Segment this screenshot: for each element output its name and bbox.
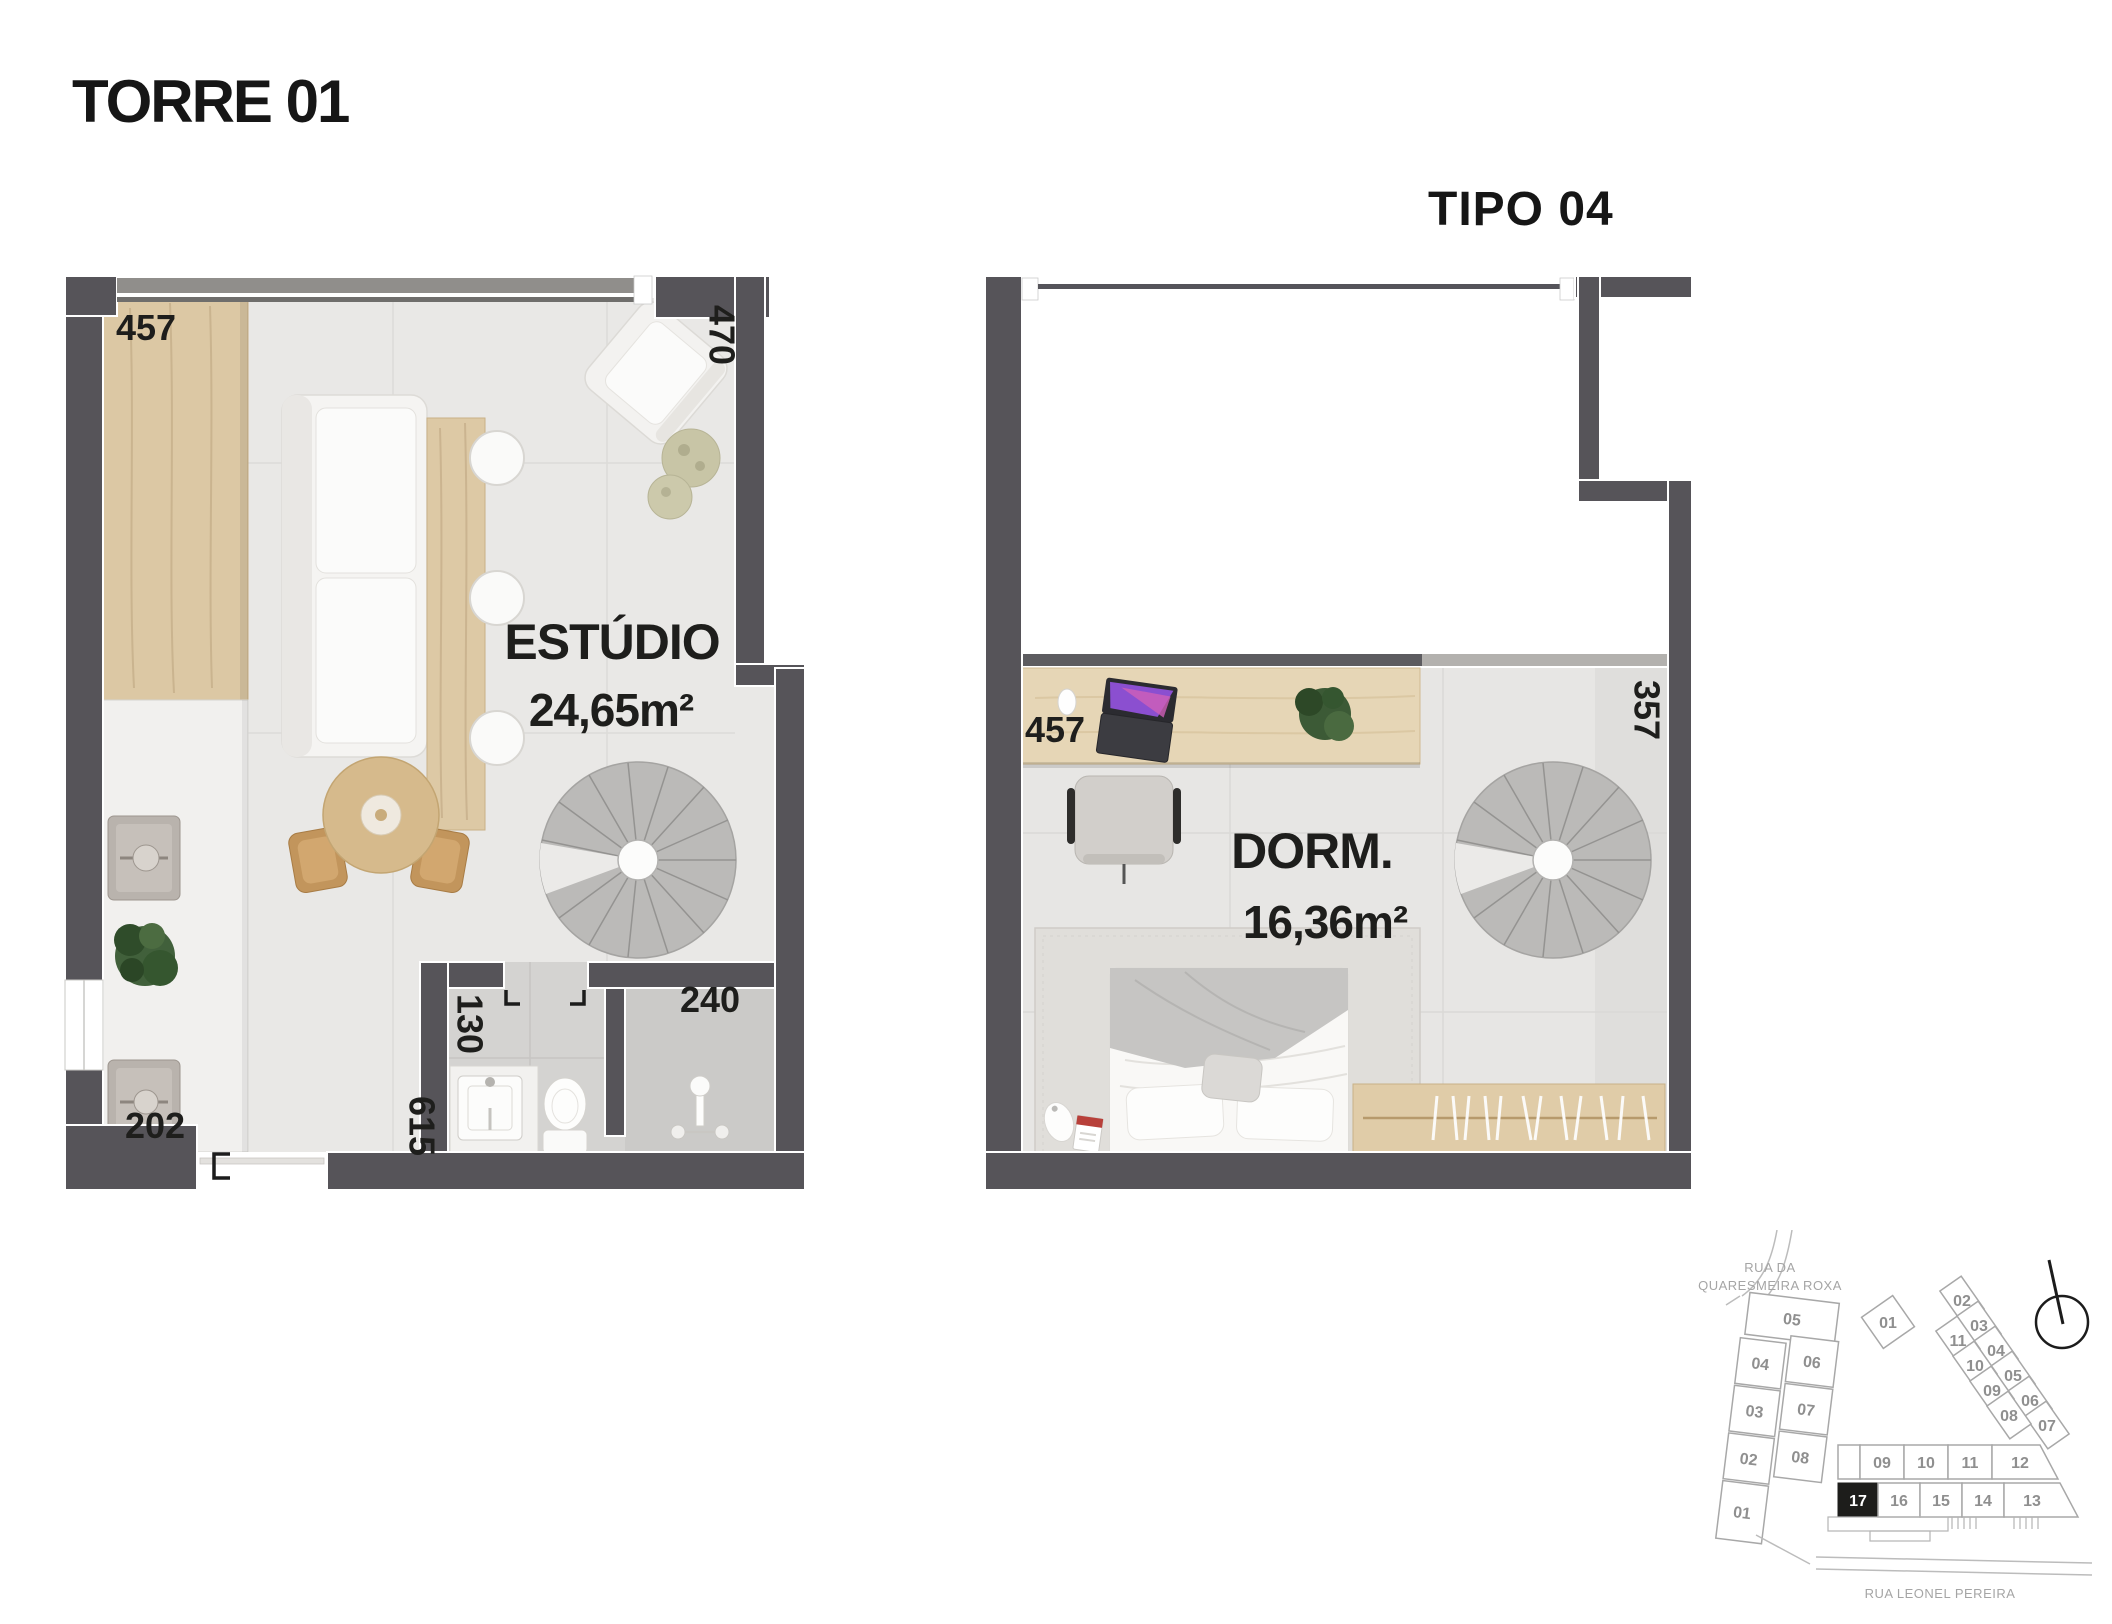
laptop [1096,677,1178,762]
unit-b11: 11 [1962,1455,1979,1472]
dim-357-right: 357 [1627,680,1668,740]
unit-b12: 12 [2011,1455,2029,1472]
dim-470-right: 470 [702,305,743,365]
street-name-top-1: RUA DA [1744,1260,1795,1275]
unit-r04: 04 [1987,1343,2005,1360]
tower-right: 01 02 03 04 05 06 07 11 10 09 08 [1862,1276,2070,1449]
unit-r09: 09 [1983,1383,2001,1400]
unit-04: 04 [1750,1355,1770,1374]
bedroom-floor-plan: 457 357 DORM. 16,36m² [975,268,1692,1198]
kitchen-counter [103,298,248,1152]
unit-r03: 03 [1970,1318,1988,1335]
block-building: 09 10 11 12 17 16 15 14 13 [1828,1445,2078,1541]
sofa [282,395,427,757]
street-name-top-2: QUARESMEIRA ROXA [1698,1278,1842,1293]
bedroom-room-area: 16,36m² [1243,896,1408,948]
unit-06: 06 [1802,1354,1822,1373]
unit-b10: 10 [1917,1455,1935,1472]
dim-130-bath-door: 130 [450,994,491,1054]
studio-room-area: 24,65m² [529,684,694,736]
toilet [543,1078,587,1154]
unit-07: 07 [1796,1401,1816,1420]
window-jamb [634,276,652,304]
unit-r08: 08 [2000,1408,2018,1425]
page-title: TORRE 01 [72,72,348,132]
bathroom-sink [450,1066,538,1152]
unit-01: 01 [1732,1504,1752,1523]
unit-r02: 02 [1953,1293,1971,1310]
unit-b15: 15 [1932,1493,1950,1510]
cushion [1201,1053,1263,1103]
unit-b09: 09 [1873,1455,1891,1472]
site-key-plan: RUA DA QUARESMEIRA ROXA 05 04 03 02 01 0… [1570,1230,2112,1624]
block-canopies [1828,1517,2038,1541]
dim-457-top: 457 [116,307,176,348]
void-railing [1038,284,1560,289]
studio-room-label: ESTÚDIO [504,614,719,670]
street-name-bottom: RUA LEONEL PEREIRA [1865,1586,2016,1601]
tower-left: 05 04 03 02 01 06 07 08 [1716,1292,1843,1550]
bedroom-room-label: DORM. [1231,823,1393,879]
unit-02: 02 [1739,1451,1759,1470]
window-jamb [1022,278,1038,300]
unit-r06: 06 [2021,1393,2039,1410]
exterior-mask [765,298,825,670]
unit-b13: 13 [2023,1493,2041,1510]
void-divider [1022,654,1668,668]
washer [108,816,180,900]
studio-floor-plan: 457 470 ESTÚDIO 24,65m² 130 615 240 202 [60,268,825,1198]
unit-b17: 17 [1849,1493,1867,1510]
unit-05: 05 [1782,1311,1802,1330]
dim-202-kitchen: 202 [125,1105,185,1146]
dining-bench [427,418,485,830]
unit-r10: 10 [1966,1358,1984,1375]
unit-08: 08 [1790,1449,1810,1468]
dim-615-hall: 615 [402,1096,443,1156]
unit-b16: 16 [1890,1493,1908,1510]
window-band [117,278,634,293]
unit-b14: 14 [1974,1493,1992,1510]
dim-457-desk: 457 [1025,709,1085,750]
unit-r07: 07 [2038,1418,2056,1435]
dim-240-shower: 240 [680,979,740,1020]
unit-03: 03 [1745,1403,1765,1422]
type-label: TIPO 04 [1428,186,1614,234]
unit-r11: 11 [1950,1333,1967,1350]
unit-r05: 05 [2004,1368,2022,1385]
window-jamb [1560,278,1574,300]
magazine [1073,1115,1103,1152]
entrance-door-leaf [200,1158,324,1164]
unit-01b: 01 [1879,1315,1897,1332]
north-compass-icon [2036,1260,2088,1348]
wardrobe [1353,1084,1665,1152]
